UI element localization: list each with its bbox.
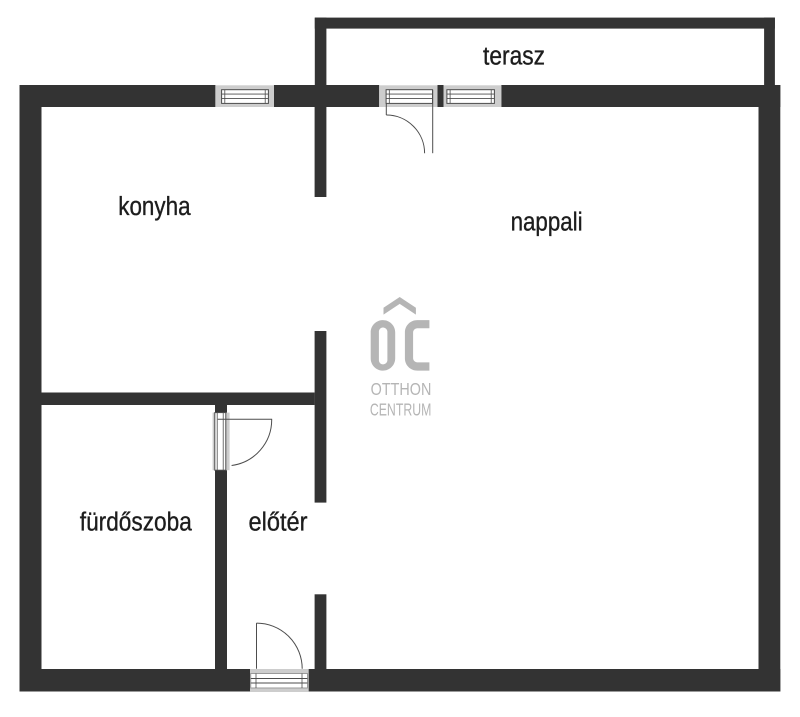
svg-text:CENTRUM: CENTRUM [370, 399, 432, 419]
svg-text:fürdőszoba: fürdőszoba [80, 509, 193, 537]
svg-text:terasz: terasz [483, 43, 545, 71]
svg-text:OTTHON: OTTHON [371, 379, 432, 399]
svg-text:előtér: előtér [249, 509, 308, 537]
svg-text:nappali: nappali [511, 209, 583, 237]
svg-text:konyha: konyha [118, 193, 191, 221]
